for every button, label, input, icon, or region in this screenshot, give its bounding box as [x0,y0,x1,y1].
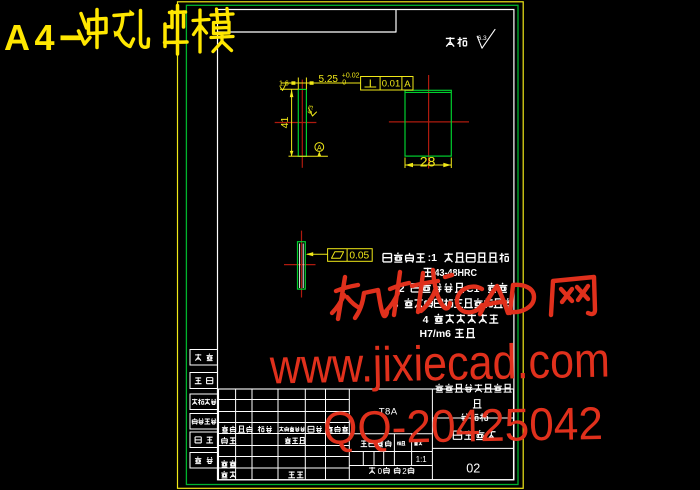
svg-text:41: 41 [279,117,291,129]
svg-text:02: 02 [466,461,480,475]
svg-text:A4: A4 [4,17,59,58]
svg-text:4: 4 [423,314,429,326]
svg-text:QQ-20425042: QQ-20425042 [322,397,603,454]
svg-text:+0.02: +0.02 [342,72,360,79]
svg-text:0: 0 [342,79,346,86]
svg-text:0: 0 [378,467,383,476]
svg-text:0.05: 0.05 [349,251,369,262]
svg-text:5.25: 5.25 [319,74,339,85]
svg-text:28: 28 [420,154,436,170]
svg-text:1:1: 1:1 [416,455,427,464]
svg-text:0.01: 0.01 [382,79,401,90]
svg-text:A: A [404,79,411,90]
svg-text:A: A [317,145,322,152]
svg-text::1: :1 [428,252,437,264]
svg-text:www.jixiecad.com: www.jixiecad.com [268,333,610,394]
svg-text:6.3: 6.3 [478,35,487,42]
svg-text:2: 2 [402,467,407,476]
svg-text:43-48HRC: 43-48HRC [435,268,478,279]
